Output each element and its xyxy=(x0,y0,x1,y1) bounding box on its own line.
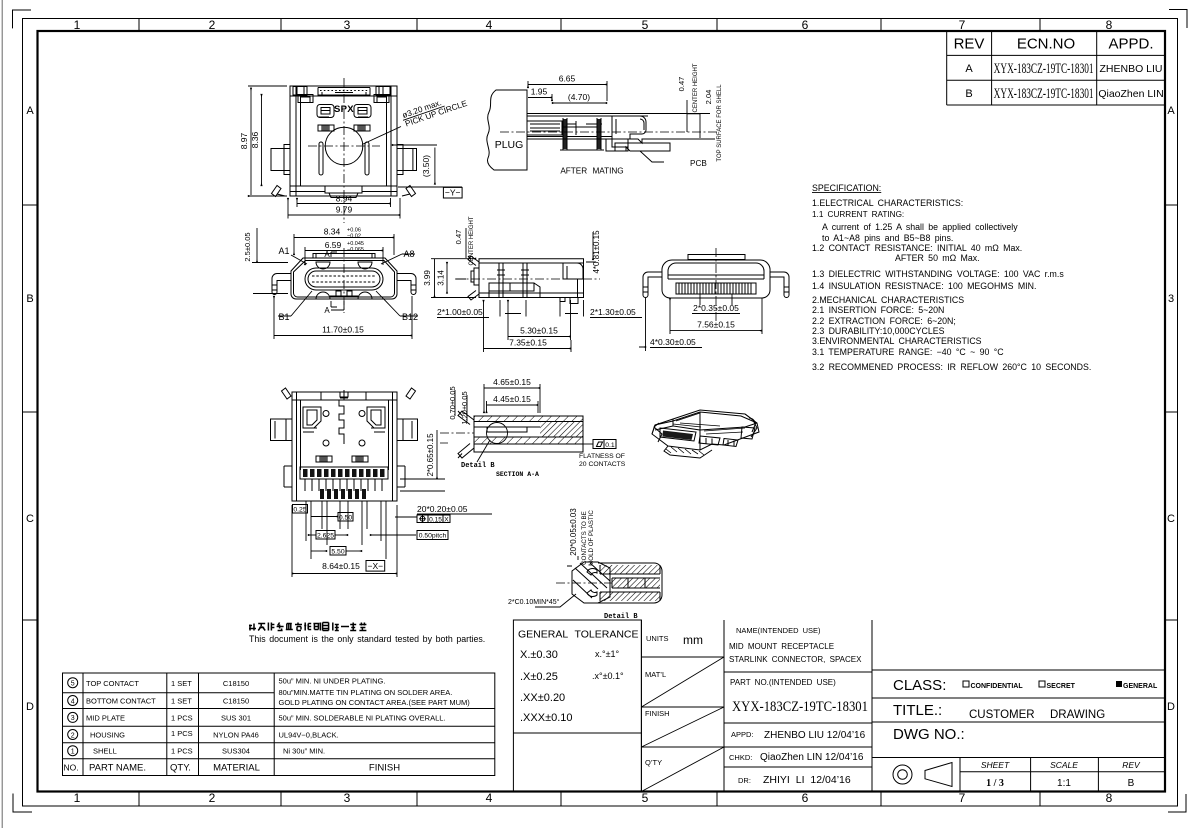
svg-text:2.625: 2.625 xyxy=(317,533,334,540)
svg-text:50u” MIN. SOLDERABLE NI PL: 50u” MIN. SOLDERABLE NI PLATING OVERALL. xyxy=(279,713,446,722)
svg-text:C18150: C18150 xyxy=(223,679,249,688)
svg-text:2.5±0.05: 2.5±0.05 xyxy=(243,232,252,261)
svg-text:1.2 CONTACT RESISTANCE: INI: 1.2 CONTACT RESISTANCE: INITIAL 40 mΩ Ma… xyxy=(812,243,1022,253)
svg-text:GENERAL: GENERAL xyxy=(1123,683,1158,690)
svg-text:BOTTOM CONTACT: BOTTOM CONTACT xyxy=(86,697,156,706)
svg-text:TOP CONTACT: TOP CONTACT xyxy=(86,679,139,688)
svg-text:6.65: 6.65 xyxy=(559,74,576,84)
svg-text:PART NAME.: PART NAME. xyxy=(89,763,146,774)
svg-text:HOUSING: HOUSING xyxy=(90,731,125,740)
svg-text:4: 4 xyxy=(486,791,493,805)
svg-text:−0.065: −0.065 xyxy=(347,247,364,253)
svg-text:3: 3 xyxy=(344,791,351,805)
svg-text:7.56±0.15: 7.56±0.15 xyxy=(697,320,735,330)
svg-text:2*C0.10MIN*45°: 2*C0.10MIN*45° xyxy=(508,598,560,606)
svg-text:SUS 301: SUS 301 xyxy=(221,713,251,722)
svg-text:2.04: 2.04 xyxy=(704,90,713,105)
svg-text:DRAWING: DRAWING xyxy=(1050,709,1105,721)
svg-text:5.50: 5.50 xyxy=(331,549,344,556)
svg-text:3: 3 xyxy=(1168,293,1174,305)
svg-text:CENTER HEIGHT: CENTER HEIGHT xyxy=(693,63,699,112)
svg-text:SCALE: SCALE xyxy=(1050,760,1078,770)
svg-text:APPD:: APPD: xyxy=(731,730,754,739)
svg-text:.x°±0.1°: .x°±0.1° xyxy=(592,671,624,681)
svg-text:6: 6 xyxy=(802,791,809,805)
svg-text:0.47: 0.47 xyxy=(677,77,686,92)
svg-text:GOLD PLATING ON CONTACT AR: GOLD PLATING ON CONTACT AREA.(SEE PART M… xyxy=(279,698,471,707)
svg-text:CONTACTS TO BE: CONTACTS TO BE xyxy=(581,511,588,565)
svg-text:This document is the only: This document is the only standard teste… xyxy=(249,634,485,644)
svg-text:4: 4 xyxy=(486,18,493,32)
svg-text:4*0.30±0.05: 4*0.30±0.05 xyxy=(650,337,696,347)
svg-text:8.94: 8.94 xyxy=(336,194,353,204)
svg-text:8.36: 8.36 xyxy=(250,131,260,148)
svg-text:5: 5 xyxy=(642,18,649,32)
svg-text:FINISH: FINISH xyxy=(369,763,400,774)
svg-text:QiaoZhen LIN: QiaoZhen LIN xyxy=(1098,88,1163,100)
svg-text:2*1.30±0.05: 2*1.30±0.05 xyxy=(590,307,636,317)
svg-text:1 PCS: 1 PCS xyxy=(171,713,193,722)
svg-text:D: D xyxy=(26,701,34,713)
svg-text:FLATNESS OF: FLATNESS OF xyxy=(579,453,625,460)
svg-text:PART NO.(INTENDED USE): PART NO.(INTENDED USE) xyxy=(730,678,836,687)
svg-text:CUSTOMER: CUSTOMER xyxy=(969,709,1035,721)
svg-text:5.30±0.15: 5.30±0.15 xyxy=(520,326,558,336)
svg-text:B: B xyxy=(26,293,33,305)
svg-text:NO.: NO. xyxy=(64,763,79,773)
svg-text:DWG NO.:: DWG NO.: xyxy=(893,726,965,743)
svg-text:SHEET: SHEET xyxy=(981,760,1010,770)
svg-text:20*0.20±0.05: 20*0.20±0.05 xyxy=(417,504,468,514)
svg-text:1 SET: 1 SET xyxy=(171,697,192,706)
svg-text:UNITS: UNITS xyxy=(646,634,669,643)
svg-text:0.15: 0.15 xyxy=(429,516,442,523)
svg-text:CHKD:: CHKD: xyxy=(729,753,752,762)
svg-text:SUS304: SUS304 xyxy=(222,747,250,756)
svg-text:80u”MIN.MATTE TIN PLATING O: 80u”MIN.MATTE TIN PLATING ON SOLDER AREA… xyxy=(279,688,453,697)
svg-text:A: A xyxy=(324,306,330,315)
svg-text:5: 5 xyxy=(71,681,75,688)
svg-text:REV: REV xyxy=(1122,760,1141,770)
svg-text:20*0.05±0.03: 20*0.05±0.03 xyxy=(569,508,578,556)
svg-text:XYX-183CZ-19TC-18301: XYX-183CZ-19TC-18301 xyxy=(994,61,1094,77)
svg-text:1 PCS: 1 PCS xyxy=(171,747,193,756)
svg-text:1.20±0.05: 1.20±0.05 xyxy=(460,391,469,424)
svg-text:STARLINK CONNECTOR, SPACEX: STARLINK CONNECTOR, SPACEX xyxy=(729,655,862,664)
svg-text:4: 4 xyxy=(71,698,75,705)
svg-text:1 / 3: 1 / 3 xyxy=(986,778,1004,789)
svg-text:MOLD OF PLASTIC: MOLD OF PLASTIC xyxy=(588,510,595,566)
svg-text:CENTER HEIGHT: CENTER HEIGHT xyxy=(469,216,475,265)
svg-text:0.1: 0.1 xyxy=(605,442,615,449)
svg-text:1 SET: 1 SET xyxy=(171,679,192,688)
svg-text:1:1: 1:1 xyxy=(1057,778,1071,789)
svg-text:(4.70): (4.70) xyxy=(568,92,590,102)
svg-text:2.MECHANICAL CHARACTERISTICS: 2.MECHANICAL CHARACTERISTICS xyxy=(812,295,964,305)
svg-text:9.79: 9.79 xyxy=(336,205,353,215)
svg-text:3.1 TEMPERATURE RANGE: −40: 3.1 TEMPERATURE RANGE: −40 °C ~ 90 °C xyxy=(812,347,1004,357)
svg-text:3.14: 3.14 xyxy=(437,270,446,286)
svg-text:6.59: 6.59 xyxy=(325,240,342,250)
svg-text:50u” MIN. NI UNDER PLATING: 50u” MIN. NI UNDER PLATING. xyxy=(279,677,386,686)
svg-text:2*0.65±0.15: 2*0.65±0.15 xyxy=(426,433,435,477)
svg-text:0.50pitch: 0.50pitch xyxy=(419,533,447,540)
svg-text:8.34: 8.34 xyxy=(324,227,341,237)
svg-text:PLUG: PLUG xyxy=(495,139,524,151)
svg-text:A: A xyxy=(26,105,34,117)
svg-text:4.65±0.15: 4.65±0.15 xyxy=(493,377,531,387)
svg-text:3.2 RECOMMENED PROCESS: IR: 3.2 RECOMMENED PROCESS: IR REFLOW 260°C … xyxy=(812,362,1091,372)
svg-text:SECTION A-A: SECTION A-A xyxy=(496,471,539,478)
svg-text:DR:: DR: xyxy=(738,776,751,785)
svg-text:REV: REV xyxy=(954,36,985,53)
svg-text:4.45±0.15: 4.45±0.15 xyxy=(493,394,531,404)
svg-text:0.25: 0.25 xyxy=(293,507,306,514)
svg-text:D: D xyxy=(1167,701,1175,713)
svg-text:5: 5 xyxy=(642,791,649,805)
svg-text:ZHENBO LIU: ZHENBO LIU xyxy=(1099,63,1162,75)
svg-text:7: 7 xyxy=(959,791,966,805)
svg-text:MAT’L: MAT’L xyxy=(645,670,666,679)
svg-text:CONFIDENTIAL: CONFIDENTIAL xyxy=(971,683,1024,690)
svg-text:A1: A1 xyxy=(278,246,289,256)
svg-text:FINISH: FINISH xyxy=(645,709,670,718)
svg-text:SECRET: SECRET xyxy=(1047,683,1076,690)
svg-text:A: A xyxy=(965,63,973,75)
svg-text:.XX±0.20: .XX±0.20 xyxy=(520,692,565,704)
svg-text:AFTER 50 mΩ Max.: AFTER 50 mΩ Max. xyxy=(895,253,980,263)
svg-text:SPECIFICATION:: SPECIFICATION: xyxy=(812,183,881,193)
svg-text:2: 2 xyxy=(209,791,216,805)
svg-text:1 PCS: 1 PCS xyxy=(171,729,193,738)
svg-text:1.ELECTRICAL CHARACTERISTICS:: 1.ELECTRICAL CHARACTERISTICS: xyxy=(812,198,963,208)
svg-text:C18150: C18150 xyxy=(223,697,249,706)
svg-text:2.2 EXTRACTION FORCE: 6~20N: 2.2 EXTRACTION FORCE: 6~20N; xyxy=(812,316,956,326)
svg-text:MID PLATE: MID PLATE xyxy=(86,713,125,722)
svg-text:20 CONTACTS: 20 CONTACTS xyxy=(579,461,626,468)
svg-text:1: 1 xyxy=(74,791,81,805)
svg-text:SHELL: SHELL xyxy=(93,747,117,756)
svg-text:1.3 DIELECTRIC WITHSTANDING: 1.3 DIELECTRIC WITHSTANDING VOLTAGE: 100… xyxy=(812,269,1064,279)
svg-text:ZHIYI LI 12/04’16: ZHIYI LI 12/04’16 xyxy=(763,774,851,786)
svg-text:(3.50): (3.50) xyxy=(421,155,431,177)
svg-text:2.1 INSERTION FORCE: 5~20N: 2.1 INSERTION FORCE: 5~20N xyxy=(812,305,944,315)
svg-text:TOP SURFACE FOR SHELL: TOP SURFACE FOR SHELL xyxy=(717,84,723,162)
svg-text:A: A xyxy=(1167,105,1175,117)
svg-text:mm: mm xyxy=(683,633,703,647)
svg-text:A: A xyxy=(324,250,330,259)
svg-text:1: 1 xyxy=(71,749,75,756)
svg-text:B1: B1 xyxy=(278,312,289,322)
svg-text:6: 6 xyxy=(802,18,809,32)
svg-text:−X−: −X− xyxy=(367,561,383,571)
svg-text:−0.02: −0.02 xyxy=(347,234,361,240)
svg-text:GENERAL TOLERANCE: GENERAL TOLERANCE xyxy=(518,629,639,641)
svg-text:B12: B12 xyxy=(402,312,418,322)
svg-text:4*0.81±0.15: 4*0.81±0.15 xyxy=(592,230,601,274)
svg-text:PCB: PCB xyxy=(690,159,707,168)
svg-text:AFTER MATING: AFTER MATING xyxy=(560,167,623,176)
svg-text:A current of 1.25 A shall: A current of 1.25 A shall be applied col… xyxy=(822,222,1018,232)
svg-text:1: 1 xyxy=(74,18,81,32)
svg-text:3.99: 3.99 xyxy=(423,270,432,286)
svg-text:Detail B: Detail B xyxy=(461,462,495,470)
svg-text:2: 2 xyxy=(71,732,75,739)
svg-text:C: C xyxy=(26,513,34,525)
svg-text:8: 8 xyxy=(1106,18,1113,32)
svg-text:0.50: 0.50 xyxy=(339,515,352,522)
svg-text:MID MOUNT RECEPTACLE: MID MOUNT RECEPTACLE xyxy=(729,642,834,651)
svg-text:11.70±0.15: 11.70±0.15 xyxy=(322,325,364,335)
svg-text:8.64±0.15: 8.64±0.15 xyxy=(322,561,360,571)
svg-text:APPD.: APPD. xyxy=(1108,36,1153,53)
svg-text:0.70±0.05: 0.70±0.05 xyxy=(448,386,457,419)
svg-text:x.°±1°: x.°±1° xyxy=(595,649,620,659)
svg-text:7: 7 xyxy=(959,18,966,32)
svg-text:2*0.35±0.05: 2*0.35±0.05 xyxy=(693,303,739,313)
svg-text:3: 3 xyxy=(344,18,351,32)
svg-text:1.4 INSULATION RESISTNACE:: 1.4 INSULATION RESISTNACE: 100 MEGOHMS M… xyxy=(812,281,1036,291)
svg-text:QiaoZhen LIN 12/04’16: QiaoZhen LIN 12/04’16 xyxy=(760,752,864,763)
svg-text:8: 8 xyxy=(1106,791,1113,805)
svg-text:XYX-183CZ-19TC-18301: XYX-183CZ-19TC-18301 xyxy=(732,699,868,715)
svg-text:TITLE.:: TITLE.: xyxy=(893,702,942,719)
svg-text:MATERIAL: MATERIAL xyxy=(213,763,260,774)
svg-text:7.35±0.15: 7.35±0.15 xyxy=(509,338,547,348)
svg-text:NAME(INTENDED USE): NAME(INTENDED USE) xyxy=(736,626,821,635)
svg-text:B: B xyxy=(1128,778,1135,789)
svg-text:.X±0.25: .X±0.25 xyxy=(520,671,558,683)
svg-text:2*1.00±0.05: 2*1.00±0.05 xyxy=(437,307,483,317)
svg-text:1.95: 1.95 xyxy=(531,87,548,97)
svg-text:X: X xyxy=(444,516,449,523)
svg-text:ZHENBO LIU 12/04’16: ZHENBO LIU 12/04’16 xyxy=(764,730,866,741)
svg-text:2.3 DURABILITY:10,000CYCLES: 2.3 DURABILITY:10,000CYCLES xyxy=(812,326,945,336)
svg-text:QTY.: QTY. xyxy=(170,763,191,774)
svg-text:.XXX±0.10: .XXX±0.10 xyxy=(520,712,573,724)
svg-text:X.±0.30: X.±0.30 xyxy=(520,649,558,661)
svg-text:to A1~A8 pins and B5~B8 p: to A1~A8 pins and B5~B8 pins. xyxy=(822,233,953,243)
svg-text:B: B xyxy=(965,88,972,100)
svg-text:CLASS:: CLASS: xyxy=(893,677,946,694)
svg-text:0.47: 0.47 xyxy=(454,230,463,245)
svg-text:2: 2 xyxy=(209,18,216,32)
svg-text:Q’TY: Q’TY xyxy=(645,758,662,767)
svg-text:C: C xyxy=(1167,513,1175,525)
svg-text:1.1 CURRENT RATING:: 1.1 CURRENT RATING: xyxy=(812,210,904,219)
svg-text:XYX-183CZ-19TC-18301: XYX-183CZ-19TC-18301 xyxy=(994,86,1094,102)
svg-text:Ni 30u” MIN.: Ni 30u” MIN. xyxy=(283,747,325,756)
svg-text:ECN.NO: ECN.NO xyxy=(1017,36,1075,53)
svg-text:8.97: 8.97 xyxy=(239,132,249,149)
svg-text:NYLON PA46: NYLON PA46 xyxy=(213,731,259,740)
svg-text:UL94V−0,BLACK.: UL94V−0,BLACK. xyxy=(279,731,339,740)
svg-text:−Y−: −Y− xyxy=(445,188,461,198)
svg-text:3: 3 xyxy=(71,715,75,722)
svg-text:3.ENVIRONMENTAL CHARACTERIS: 3.ENVIRONMENTAL CHARACTERISTICS xyxy=(812,336,982,346)
